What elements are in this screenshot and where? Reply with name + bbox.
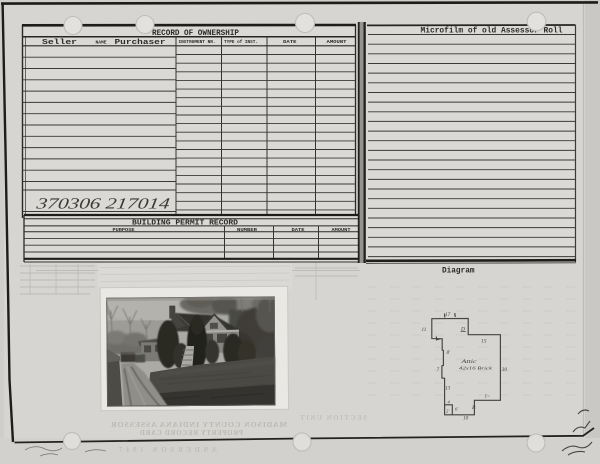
svg-text:B: B (472, 405, 476, 411)
svg-text:TYPE of INST.: TYPE of INST. (224, 39, 258, 45)
svg-text:1~: 1~ (485, 394, 491, 400)
svg-text:10: 10 (463, 416, 469, 422)
svg-text:Diagram: Diagram (442, 266, 475, 276)
svg-text:PROPERTY RECORD CARD: PROPERTY RECORD CARD (140, 430, 243, 437)
svg-text:42x16 Brick: 42x16 Brick (459, 366, 492, 371)
svg-text:INSTRUMENT NR.: INSTRUMENT NR. (179, 39, 216, 45)
svg-text:11: 11 (422, 327, 427, 333)
svg-text:DATE: DATE (283, 39, 297, 45)
svg-text:7: 7 (437, 367, 440, 373)
svg-text:13: 13 (445, 386, 451, 392)
svg-text:MADISON COUNTY INDIANA ASSESSO: MADISON COUNTY INDIANA ASSESSOR (111, 420, 287, 429)
svg-text:15: 15 (481, 339, 487, 345)
svg-text:BUILDING PERMIT RECORD: BUILDING PERMIT RECORD (132, 220, 239, 228)
svg-text:30: 30 (502, 367, 508, 373)
svg-text:Attic: Attic (460, 360, 478, 365)
svg-text:NAME: NAME (96, 42, 108, 46)
svg-text:370306 217014: 370306 217014 (34, 196, 171, 213)
svg-text:17: 17 (445, 312, 451, 318)
svg-text:AMOUNT: AMOUNT (327, 39, 347, 45)
